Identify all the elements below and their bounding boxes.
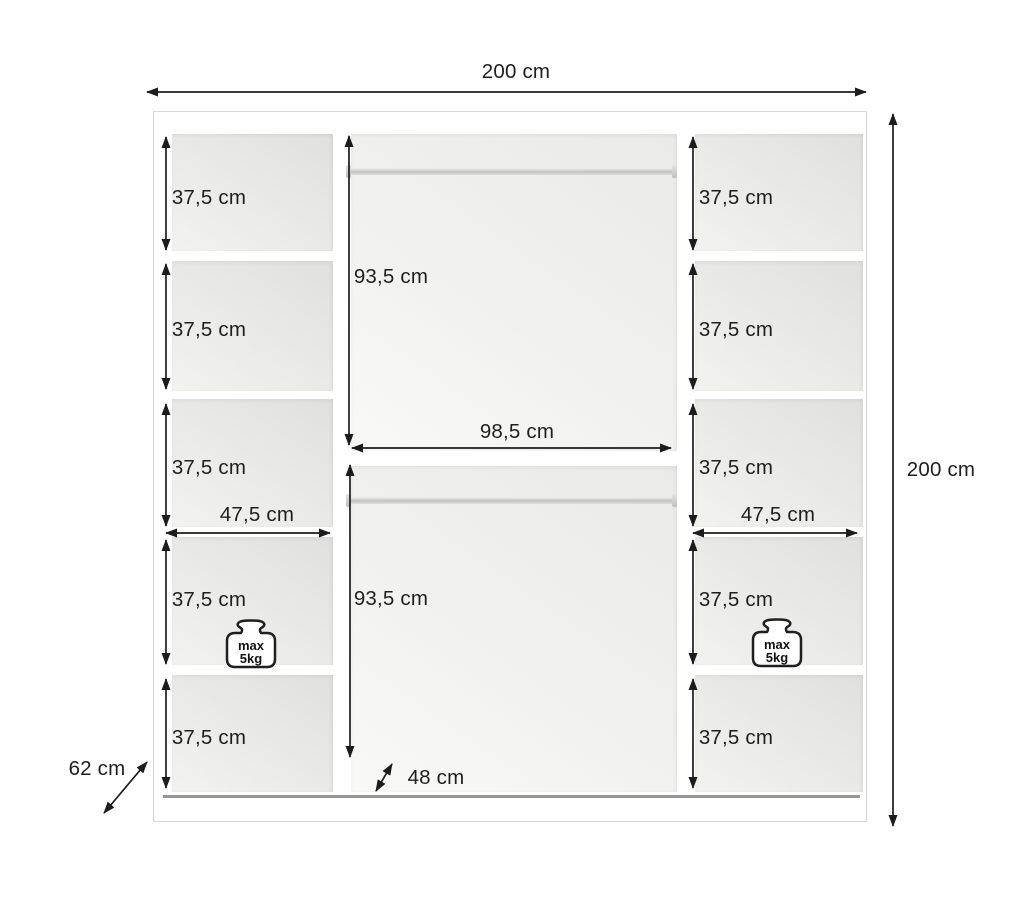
left-column-width-label: 47,5 cm	[220, 503, 294, 527]
overall-height-label: 200 cm	[907, 458, 975, 482]
left-shelf-height-label-5: 37,5 cm	[172, 726, 246, 750]
left-shelf-height-label-4: 37,5 cm	[172, 588, 246, 612]
right-column-width-label: 47,5 cm	[741, 503, 815, 527]
lower-hanging-height-label: 93,5 cm	[354, 587, 428, 611]
overall-width-label: 200 cm	[482, 60, 550, 84]
dim-line-interior-depth	[376, 764, 392, 791]
right-shelf-height-label-1: 37,5 cm	[699, 186, 773, 210]
middle-width-label: 98,5 cm	[480, 420, 554, 444]
wardrobe-dimension-diagram: max 5kg max 5kg	[0, 0, 1024, 920]
right-shelf-height-label-3: 37,5 cm	[699, 456, 773, 480]
overall-depth-label: 62 cm	[69, 757, 126, 781]
right-shelf-height-label-2: 37,5 cm	[699, 318, 773, 342]
left-shelf-height-label-3: 37,5 cm	[172, 456, 246, 480]
upper-hanging-height-label: 93,5 cm	[354, 265, 428, 289]
dimension-arrows	[0, 0, 1024, 920]
left-shelf-height-label-1: 37,5 cm	[172, 186, 246, 210]
right-shelf-height-label-5: 37,5 cm	[699, 726, 773, 750]
interior-depth-label: 48 cm	[408, 766, 465, 790]
right-shelf-height-label-4: 37,5 cm	[699, 588, 773, 612]
left-shelf-height-label-2: 37,5 cm	[172, 318, 246, 342]
